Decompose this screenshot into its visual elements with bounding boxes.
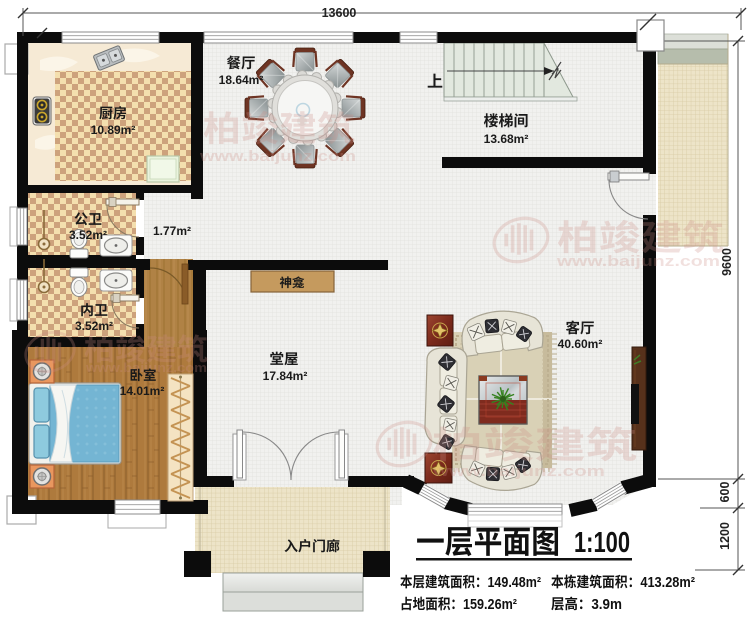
svg-text:层高：3.9m: 层高：3.9m [551, 593, 622, 614]
svg-text:卧室: 卧室 [130, 364, 157, 384]
svg-text:1.77m²: 1.77m² [153, 224, 191, 238]
svg-text:柏竣建筑: 柏竣建筑 [203, 101, 355, 152]
svg-text:3.52m²: 3.52m² [69, 228, 107, 242]
svg-text:40.60m²: 40.60m² [558, 337, 603, 351]
svg-text:神龛: 神龛 [279, 272, 305, 291]
svg-text:1:100: 1:100 [574, 527, 630, 559]
svg-text:www.baijunz.com: www.baijunz.com [432, 463, 605, 480]
svg-text:17.84m²: 17.84m² [263, 369, 308, 383]
svg-text:14.01m²: 14.01m² [120, 384, 165, 398]
svg-text:18.64m²: 18.64m² [219, 73, 264, 87]
svg-text:13.68m²: 13.68m² [484, 132, 529, 146]
svg-text:一层平面图: 一层平面图 [416, 517, 560, 563]
svg-text:9600: 9600 [720, 248, 734, 276]
svg-text:www.baijunz.com: www.baijunz.com [556, 253, 720, 270]
svg-text:公卫: 公卫 [74, 209, 102, 229]
svg-text:本栋建筑面积：413.28m²: 本栋建筑面积：413.28m² [551, 571, 695, 592]
svg-text:10.89m²: 10.89m² [91, 123, 136, 137]
svg-text:餐厅: 餐厅 [227, 52, 256, 73]
svg-text:本层建筑面积：149.48m²: 本层建筑面积：149.48m² [400, 571, 541, 592]
svg-text:楼梯间: 楼梯间 [483, 110, 528, 131]
svg-text:上: 上 [427, 68, 443, 92]
svg-text:13600: 13600 [322, 6, 357, 20]
svg-text:3.52m²: 3.52m² [75, 319, 113, 333]
svg-text:入户门廊: 入户门廊 [284, 536, 340, 556]
svg-text:内卫: 内卫 [80, 300, 108, 320]
svg-text:占地面积：159.26m²: 占地面积：159.26m² [400, 593, 517, 614]
svg-text:厨房: 厨房 [99, 103, 127, 123]
svg-text:堂屋: 堂屋 [270, 348, 299, 369]
svg-text:柏竣建筑: 柏竣建筑 [432, 415, 637, 469]
svg-text:600: 600 [718, 482, 732, 503]
svg-text:1200: 1200 [718, 522, 732, 550]
svg-text:客厅: 客厅 [566, 317, 595, 338]
svg-text:www.baijunz.com: www.baijunz.com [199, 148, 356, 165]
